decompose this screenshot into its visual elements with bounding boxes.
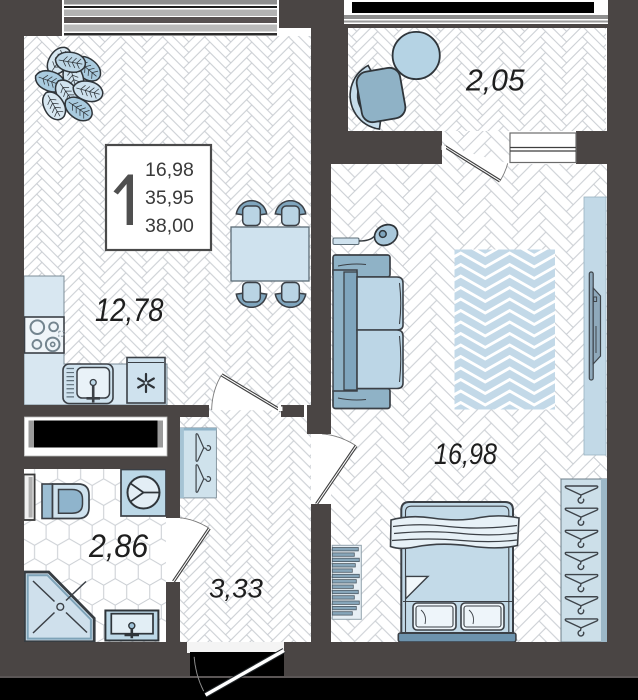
- svg-text:2,86: 2,86: [88, 528, 148, 564]
- svg-text:3,33: 3,33: [209, 574, 263, 604]
- svg-text:16,98: 16,98: [145, 159, 194, 181]
- svg-text:35,95: 35,95: [145, 187, 194, 209]
- svg-text:2,05: 2,05: [465, 63, 525, 98]
- svg-text:12,78: 12,78: [95, 292, 164, 328]
- svg-text:38,00: 38,00: [145, 215, 194, 237]
- svg-text:16,98: 16,98: [434, 438, 498, 471]
